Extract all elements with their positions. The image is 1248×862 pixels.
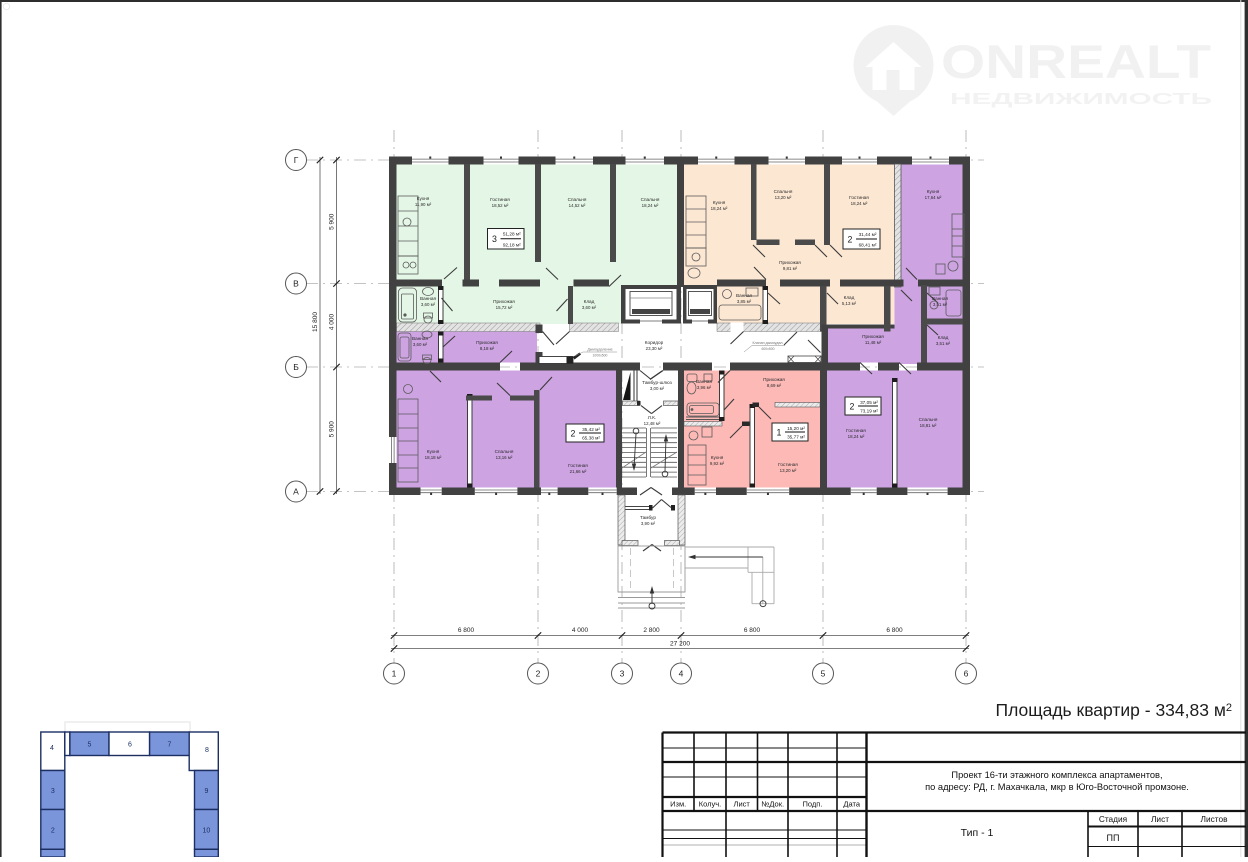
svg-text:1000х500: 1000х500 [593,353,608,357]
svg-text:Спальня: Спальня [495,449,514,454]
svg-text:2: 2 [536,669,541,679]
svg-text:Б: Б [293,362,299,372]
svg-text:Клапан дымоудал.: Клапан дымоудал. [752,341,783,345]
svg-text:18,18 м²: 18,18 м² [425,455,442,460]
svg-text:Гостиная: Гостиная [849,195,869,200]
svg-text:9,92 м²: 9,92 м² [710,461,725,466]
svg-text:8,69 м²: 8,69 м² [767,383,782,388]
svg-text:5,13 м²: 5,13 м² [842,301,857,306]
svg-text:В: В [293,279,299,289]
svg-text:3,00 м²: 3,00 м² [650,386,665,391]
svg-text:Ванная: Ванная [420,296,437,301]
svg-text:Кухня: Кухня [427,449,440,454]
svg-text:13,20 м²: 13,20 м² [775,195,792,200]
svg-text:Спальня: Спальня [919,417,938,422]
svg-text:Кухня: Кухня [713,200,726,205]
svg-text:3,85 м²: 3,85 м² [737,299,752,304]
svg-text:Прихожая: Прихожая [862,334,884,339]
svg-text:3,60 м²: 3,60 м² [582,305,597,310]
svg-text:35,42 м²: 35,42 м² [582,427,600,432]
svg-text:18,24 м²: 18,24 м² [642,203,659,208]
svg-text:Гостиная: Гостиная [490,197,510,202]
svg-text:Клад: Клад [938,335,949,340]
svg-text:Стадия: Стадия [1099,814,1127,824]
svg-text:НЕДВИЖИМОСТЬ: НЕДВИЖИМОСТЬ [950,91,1212,108]
svg-text:Спальня: Спальня [568,197,587,202]
svg-text:18,52 м²: 18,52 м² [492,203,509,208]
svg-text:18,81 м²: 18,81 м² [920,423,937,428]
svg-text:3,96 м²: 3,96 м² [697,385,712,390]
svg-text:5 900: 5 900 [329,213,336,230]
svg-text:4 000: 4 000 [329,313,336,330]
svg-text:14,52 м²: 14,52 м² [569,203,586,208]
svg-text:51,28 м²: 51,28 м² [503,232,521,237]
svg-text:15,72 м²: 15,72 м² [496,305,513,310]
svg-text:4: 4 [679,669,684,679]
svg-text:Гостиная: Гостиная [778,462,798,467]
svg-text:Клад: Клад [844,295,855,300]
svg-text:Тамбур: Тамбур [640,515,656,520]
svg-text:Тип - 1: Тип - 1 [961,827,994,839]
svg-text:3: 3 [492,234,497,244]
svg-text:Лист: Лист [1151,814,1169,824]
svg-text:6: 6 [128,742,132,749]
svg-text:Листов: Листов [1201,814,1229,824]
svg-text:ПП: ПП [1107,833,1120,843]
svg-text:Кухня: Кухня [417,196,430,201]
svg-text:92,18 м²: 92,18 м² [503,242,521,247]
svg-text:3,90 м²: 3,90 м² [641,521,656,526]
svg-text:Спальня: Спальня [641,197,660,202]
svg-text:1: 1 [392,669,397,679]
svg-text:5: 5 [821,669,826,679]
svg-text:13,20 м²: 13,20 м² [780,468,797,473]
svg-text:2: 2 [51,828,55,835]
svg-text:18,24 м²: 18,24 м² [711,206,728,211]
svg-text:6 800: 6 800 [744,627,761,634]
svg-text:18,24 м²: 18,24 м² [851,201,868,206]
svg-text:5: 5 [88,742,92,749]
svg-text:17,64 м²: 17,64 м² [925,195,942,200]
svg-text:Проект 16-ти этажного комплекс: Проект 16-ти этажного комплекса апартаме… [951,770,1162,780]
svg-text:Площадь квартир - 334,83 м2: Площадь квартир - 334,83 м2 [996,700,1233,720]
svg-text:2: 2 [850,401,855,411]
svg-text:А: А [293,487,299,497]
svg-text:73,19 м²: 73,19 м² [860,408,878,413]
svg-text:Колуч.: Колуч. [699,800,722,809]
svg-text:Гостиная: Гостиная [568,463,588,468]
svg-text:5 900: 5 900 [329,421,336,438]
svg-text:2 800: 2 800 [643,627,660,634]
svg-text:Изм.: Изм. [670,800,686,809]
svg-text:35,77 м²: 35,77 м² [787,434,805,439]
svg-text:2: 2 [848,234,853,244]
svg-text:Г: Г [294,155,299,165]
svg-text:18,24 м²: 18,24 м² [848,434,865,439]
svg-text:ONREALT: ONREALT [941,35,1211,88]
svg-text:Прихожая: Прихожая [493,299,515,304]
svg-text:65,38 м²: 65,38 м² [582,435,600,440]
svg-text:8: 8 [205,747,209,754]
svg-text:7: 7 [168,742,172,749]
svg-text:Ванная: Ванная [696,379,713,384]
svg-text:Клад: Клад [584,299,595,304]
svg-text:Спальня: Спальня [774,189,793,194]
svg-text:Дата: Дата [843,800,860,809]
svg-text:13,16 м²: 13,16 м² [496,455,513,460]
svg-text:15,20 м²: 15,20 м² [787,426,805,431]
svg-text:37,05 м²: 37,05 м² [860,400,878,405]
svg-text:3: 3 [51,788,55,795]
svg-text:9: 9 [204,788,208,795]
svg-text:Кухня: Кухня [711,455,724,460]
svg-text:8,18 м²: 8,18 м² [480,346,495,351]
svg-text:1: 1 [777,427,782,437]
svg-text:Прихожая: Прихожая [763,377,785,382]
svg-text:Кухня: Кухня [927,189,940,194]
svg-text:Ванная: Ванная [412,336,429,341]
svg-text:по адресу: РД, г. Махачкала, м: по адресу: РД, г. Махачкала, мкр в Юго-В… [925,782,1189,792]
svg-text:Дымоудаление: Дымоудаление [587,348,612,352]
svg-text:Коридор: Коридор [645,340,664,345]
svg-text:6 800: 6 800 [458,627,475,634]
svg-text:3,51 м²: 3,51 м² [933,302,948,307]
svg-text:3,60 м²: 3,60 м² [421,302,436,307]
svg-text:Л.К.: Л.К. [648,415,656,420]
svg-text:4: 4 [50,745,54,752]
svg-text:4 000: 4 000 [572,627,589,634]
svg-text:Ванная: Ванная [736,293,753,298]
svg-text:12,48 м²: 12,48 м² [644,421,661,426]
svg-text:3,51 м²: 3,51 м² [936,341,951,346]
svg-text:Тамбур-шлюз: Тамбур-шлюз [642,380,672,385]
svg-text:3,60 м²: 3,60 м² [413,342,428,347]
svg-text:9,81 м²: 9,81 м² [783,266,798,271]
svg-text:Прихожая: Прихожая [476,340,498,345]
svg-text:3: 3 [620,669,625,679]
svg-text:10: 10 [203,828,211,835]
svg-text:600х500: 600х500 [761,347,774,351]
svg-text:11,90 м²: 11,90 м² [415,202,432,207]
svg-text:Лист: Лист [734,800,751,809]
svg-text:Ванная: Ванная [932,296,949,301]
svg-text:Гостиная: Гостиная [846,428,866,433]
svg-text:31,44 м²: 31,44 м² [859,232,877,237]
svg-text:27 200: 27 200 [670,641,690,648]
svg-text:№Док.: №Док. [761,800,784,809]
svg-text:6 800: 6 800 [886,627,903,634]
svg-text:Подп.: Подп. [803,800,823,809]
svg-text:6: 6 [964,669,969,679]
svg-text:23,30 м²: 23,30 м² [646,346,663,351]
svg-text:2: 2 [571,428,576,438]
svg-text:68,41 м²: 68,41 м² [859,242,877,247]
svg-text:15 800: 15 800 [312,312,319,332]
svg-text:21,66 м²: 21,66 м² [570,469,587,474]
svg-text:Прихожая: Прихожая [779,260,801,265]
svg-text:11,48 м²: 11,48 м² [865,340,882,345]
